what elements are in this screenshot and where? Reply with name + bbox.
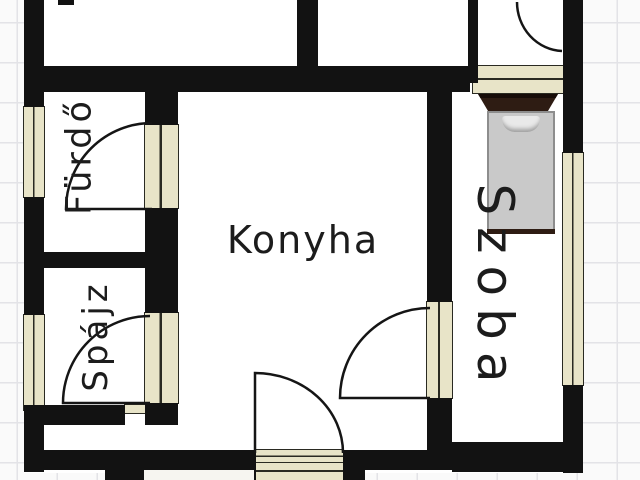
wall-stub-bottom — [343, 470, 365, 480]
wall-top-divider — [297, 0, 318, 66]
window-icon-left-2 — [24, 315, 44, 410]
room-label-konyha: Konyha — [227, 221, 379, 259]
wall-porch-step — [105, 470, 142, 480]
entrance-steps — [256, 463, 343, 480]
bed-pillow — [502, 116, 540, 132]
doorway-furdo — [145, 125, 178, 208]
wall-hall-left — [468, 0, 478, 83]
wall-top-horizontal — [24, 66, 470, 92]
room-label-szoba: Szoba — [470, 184, 520, 395]
wall-konyha-szoba-lower — [427, 398, 452, 450]
doorway-hall — [473, 66, 563, 93]
room-label-furdo: Fürdő — [63, 97, 98, 215]
wall-stub-top — [58, 0, 74, 5]
wall-bottom-left — [24, 450, 256, 470]
wall-right-upper — [563, 0, 583, 153]
wall-spajz-konyha-lower — [145, 403, 178, 425]
wall-bottom-szoba — [452, 442, 583, 472]
window-icon-right — [563, 153, 583, 385]
wall-spajz-bottom — [24, 405, 125, 425]
window-icon-left-1 — [24, 107, 44, 197]
wall-konyha-szoba-upper — [427, 83, 452, 302]
doorway-entrance — [256, 450, 343, 463]
wall-furdo-spajz-divider — [24, 252, 145, 268]
wall-furdo-konyha-upper — [145, 92, 178, 125]
floor-plan: Fürdő Spájz Konyha Szoba — [0, 0, 640, 480]
doorway-szoba — [427, 302, 452, 398]
porch-slab — [142, 468, 256, 480]
room-label-spajz: Spájz — [79, 280, 113, 391]
wall-furdo-konyha-middle — [145, 208, 178, 313]
doorway-spajz — [145, 313, 178, 403]
